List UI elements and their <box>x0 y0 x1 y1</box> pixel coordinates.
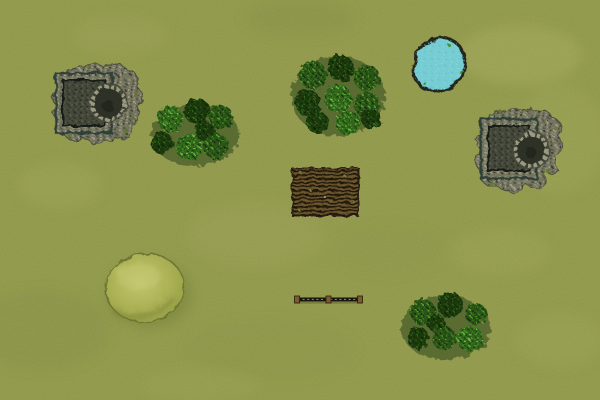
tree <box>407 327 429 349</box>
field-furrows <box>293 169 359 216</box>
hill-highlight <box>116 263 160 289</box>
tree <box>307 112 329 134</box>
battle-map <box>0 0 600 400</box>
tree <box>354 65 380 91</box>
tree <box>361 109 381 129</box>
forest-north[interactable] <box>291 55 385 136</box>
tree <box>336 111 360 135</box>
fence-post <box>358 296 363 303</box>
tree <box>151 132 173 154</box>
field-center[interactable] <box>293 169 359 216</box>
forest-west[interactable] <box>151 98 239 166</box>
tree <box>299 61 327 89</box>
fence-post <box>295 296 300 303</box>
map-canvas <box>0 0 600 400</box>
tree <box>184 98 210 124</box>
fence-post <box>326 296 331 303</box>
tree <box>465 303 487 325</box>
tree <box>324 85 352 113</box>
round-tower <box>88 83 128 123</box>
tree <box>432 326 456 350</box>
tree <box>437 292 463 318</box>
tree <box>176 134 202 160</box>
tree <box>203 133 229 159</box>
tree <box>328 55 354 81</box>
round-tower <box>512 131 551 170</box>
ruin-northwest[interactable] <box>53 63 143 143</box>
tree <box>457 326 483 352</box>
tree <box>157 106 183 132</box>
